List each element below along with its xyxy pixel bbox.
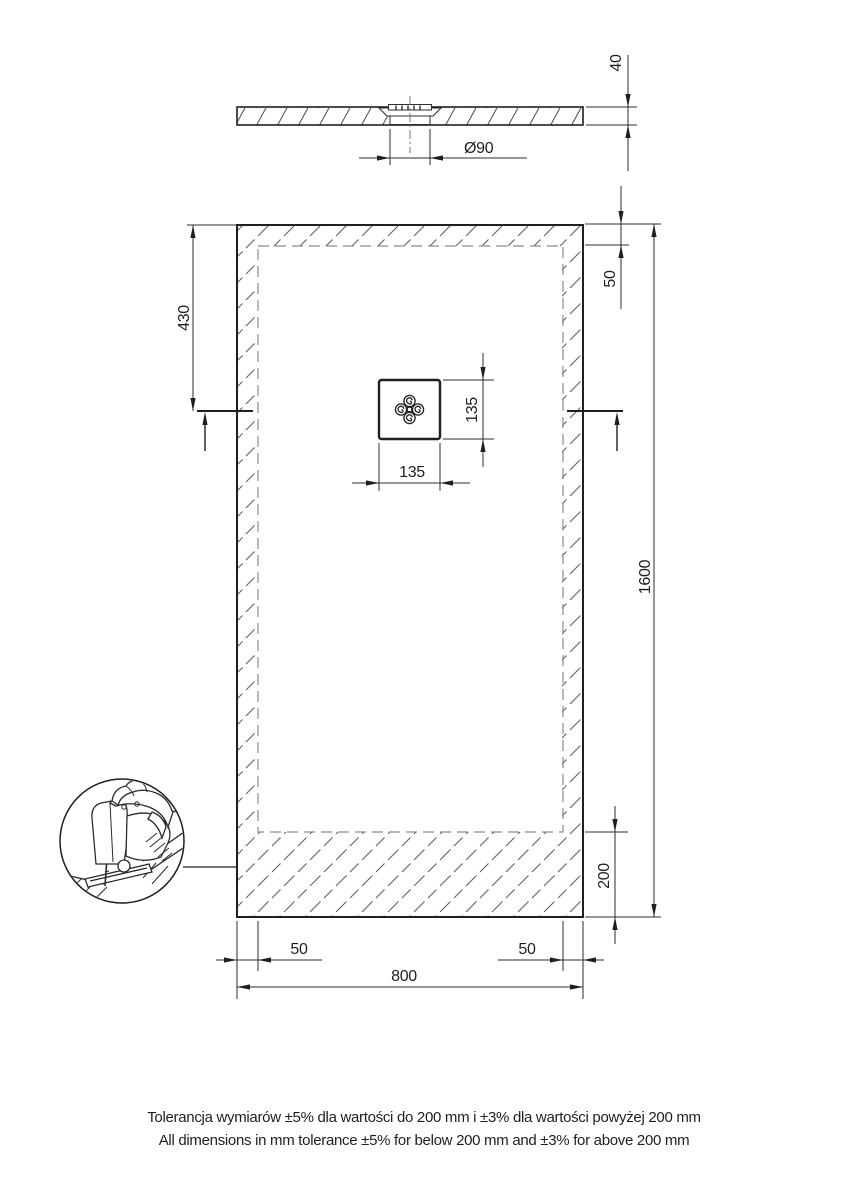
jigsaw-detail <box>60 777 237 903</box>
dim-drain-diameter-label: Ø90 <box>464 140 494 157</box>
dim-border-bottom-label: 200 <box>596 863 613 889</box>
plan-view: 430 50 1600 135 <box>176 186 661 999</box>
dim-length: 1600 <box>585 224 661 917</box>
dim-border-right-label: 50 <box>518 941 536 958</box>
jigsaw-detail-icon <box>62 777 189 902</box>
dim-thickness-label: 40 <box>608 54 625 72</box>
dim-drain-offset-top-label: 430 <box>176 305 193 331</box>
dim-border-bottom: 200 <box>585 806 628 944</box>
tolerance-notes: Tolerancja wymiarów ±5% dla wartości do … <box>147 1109 701 1149</box>
technical-drawing: 40 Ø90 <box>0 0 849 1200</box>
drain-square <box>379 380 440 439</box>
dim-width-label: 800 <box>391 968 417 985</box>
dim-border-right: 50 <box>498 941 604 963</box>
tray-outline <box>237 225 583 917</box>
tolerance-note-en: All dimensions in mm tolerance ±5% for b… <box>159 1132 690 1149</box>
dim-drain-diameter: Ø90 <box>359 129 527 165</box>
dim-border-top-label: 50 <box>602 270 619 288</box>
dim-width: 800 <box>237 968 583 990</box>
dim-thickness: 40 <box>586 54 637 171</box>
dim-border-left: 50 <box>216 941 322 963</box>
profile-view: 40 Ø90 <box>237 54 637 171</box>
dim-drain-offset-top: 430 <box>176 225 236 411</box>
dim-border-top: 50 <box>585 186 661 309</box>
dim-length-label: 1600 <box>637 559 654 594</box>
dim-drain-height-label: 135 <box>464 397 481 423</box>
dim-drain-width-label: 135 <box>399 464 425 481</box>
technical-drawing-page: 40 Ø90 <box>0 0 849 1200</box>
dim-border-left-label: 50 <box>290 941 308 958</box>
tolerance-note-pl: Tolerancja wymiarów ±5% dla wartości do … <box>147 1109 701 1126</box>
